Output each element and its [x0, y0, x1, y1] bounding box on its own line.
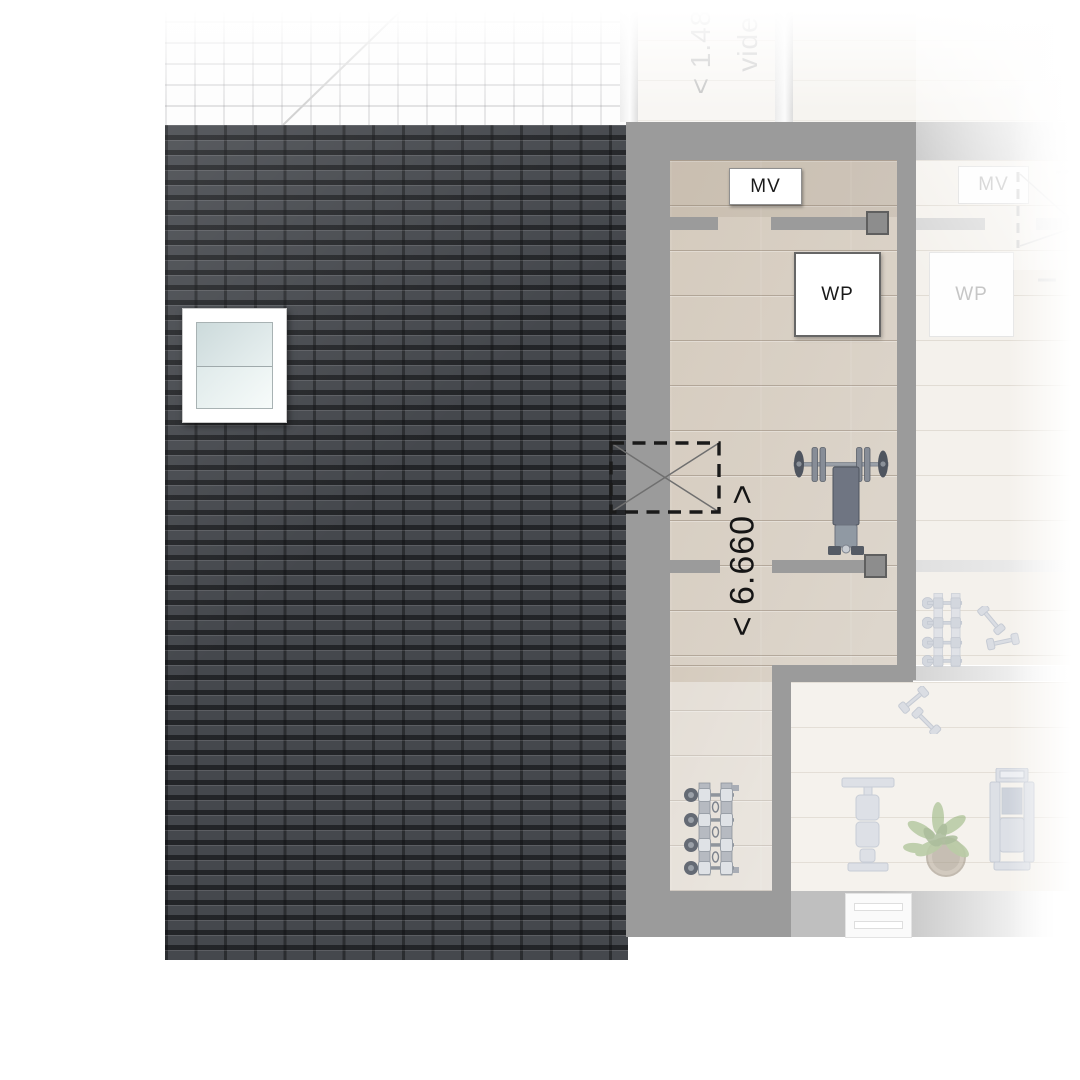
void-wall-right — [775, 0, 793, 122]
adjacent-wall-top-band — [916, 122, 1080, 160]
roof-hatch-dashed-icon — [608, 440, 722, 515]
adjacent-hatch-icon — [1012, 166, 1080, 284]
wall-step-horizontal — [772, 665, 913, 682]
mv-box: MV — [729, 168, 802, 205]
column-a — [866, 211, 889, 235]
roof-area — [165, 125, 628, 960]
adjacent-mv-label: MV — [978, 174, 1009, 196]
room-length-dimension: < 6.660 > — [724, 484, 763, 637]
room-floor-upper — [670, 160, 897, 665]
wall-partition-a-left — [670, 217, 718, 230]
adjacent-skylight-slat — [854, 921, 903, 929]
wall-bottom-band — [626, 891, 791, 937]
skylight-glass — [196, 322, 273, 409]
adjacent-wp-box: WP — [929, 252, 1014, 337]
adjacent-dumbbell-rack-icon — [922, 584, 968, 676]
adjacent-wall-partition-b — [916, 560, 1080, 572]
roof-hip-line-icon — [165, 0, 628, 125]
adjacent-skylight-slat — [854, 903, 903, 911]
floor-plan-canvas: < 1.48 vide MV WP — [0, 0, 1080, 1080]
wall-partition-b-right — [772, 560, 867, 573]
wall-left — [626, 122, 670, 937]
adjacent-weight-bench-icon — [840, 775, 896, 875]
adjacent-skylight — [845, 893, 912, 938]
adjacent-wp-label: WP — [955, 284, 988, 306]
adjacent-exercise-machine-icon — [988, 768, 1036, 872]
wp-label: WP — [821, 284, 854, 306]
mv-label: MV — [750, 176, 781, 198]
wall-party-right — [897, 122, 916, 680]
top-width-dimension: < 1.48 — [685, 10, 717, 95]
adjacent-loose-dumbbells-icon — [898, 686, 946, 734]
adjacent-top-floor — [793, 0, 1080, 122]
skylight-pane-bottom — [197, 367, 272, 408]
wp-box: WP — [794, 252, 881, 337]
adjacent-loose-dumbbells-icon — [975, 606, 1023, 654]
adjacent-wall-partition-a — [916, 218, 985, 230]
void-label: vide — [732, 16, 764, 71]
dumbbell-rack-icon — [684, 781, 742, 877]
void-wall-left — [620, 0, 638, 122]
adjacent-wall-bottom-band — [791, 891, 1080, 937]
wall-partition-b-left — [670, 560, 720, 573]
wall-partition-a-right — [771, 217, 868, 230]
skylight-pane-top — [197, 323, 272, 368]
skylight-window — [182, 308, 287, 423]
potted-plant-icon — [903, 790, 973, 885]
barbell-bench-icon — [786, 446, 896, 558]
